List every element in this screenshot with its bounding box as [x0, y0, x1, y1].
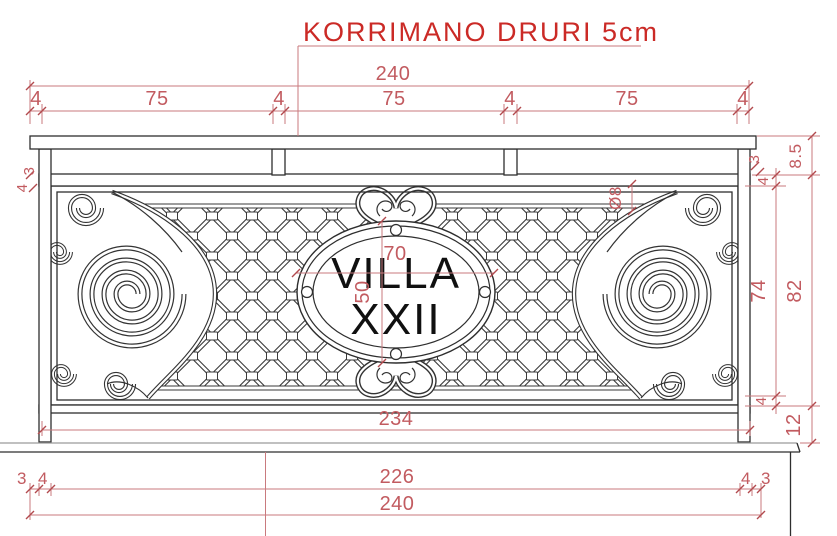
- dim-bottom-left-gap: 4: [38, 469, 48, 488]
- dim-panel-outer-height: 82: [784, 279, 806, 302]
- balcony-railing-drawing: VILLA XXII 240 4 75 4 75 4 75 4: [0, 0, 837, 536]
- left-stile: [39, 149, 51, 442]
- handrail: [30, 136, 756, 149]
- dim-oval-width: 70: [383, 243, 406, 265]
- dim-top-seg-2: 75: [145, 88, 168, 110]
- dim-panel-inner-height: 74: [748, 279, 770, 302]
- dim-top-seg-6: 75: [615, 88, 638, 110]
- dim-right-step: 3: [746, 155, 763, 164]
- post-2: [272, 149, 285, 175]
- dim-handrail-height: 8.5: [786, 143, 805, 168]
- dim-right-gap-bottom: 4: [753, 397, 770, 406]
- dim-bottom-total: 240: [380, 493, 415, 515]
- balustrade-panel: VILLA XXII: [30, 136, 756, 442]
- dim-right-gap-top: 4: [755, 177, 772, 186]
- dim-top-seg-5: 4: [504, 88, 516, 110]
- technical-drawing-canvas: VILLA XXII 240 4 75 4 75 4 75 4: [0, 0, 837, 536]
- dim-frame-width: 234: [379, 408, 414, 430]
- dim-bottom-right-step: 3: [761, 469, 771, 488]
- dim-bottom-left-step: 3: [17, 469, 27, 488]
- dim-top-total: 240: [376, 63, 411, 85]
- title-leader-line: [298, 46, 641, 136]
- dim-left-step: 3: [21, 167, 38, 176]
- dim-top-seg-4: 75: [382, 88, 405, 110]
- dim-top-seg-7: 4: [737, 88, 749, 110]
- dim-base-height: 12: [783, 413, 805, 436]
- dim-bar-diameter: Ø8: [606, 186, 625, 210]
- drawing-title: KORRIMANO DRURI 5cm: [303, 17, 659, 47]
- dim-top-seg-1: 4: [30, 88, 42, 110]
- dim-bottom-inner-width: 226: [380, 466, 415, 488]
- dim-bottom-right-gap: 4: [741, 469, 751, 488]
- top-rail-band: [39, 174, 750, 186]
- dim-top-seg-3: 4: [273, 88, 285, 110]
- post-3: [504, 149, 517, 175]
- dim-oval-height: 50: [352, 280, 374, 303]
- dim-left-gap: 4: [14, 184, 31, 193]
